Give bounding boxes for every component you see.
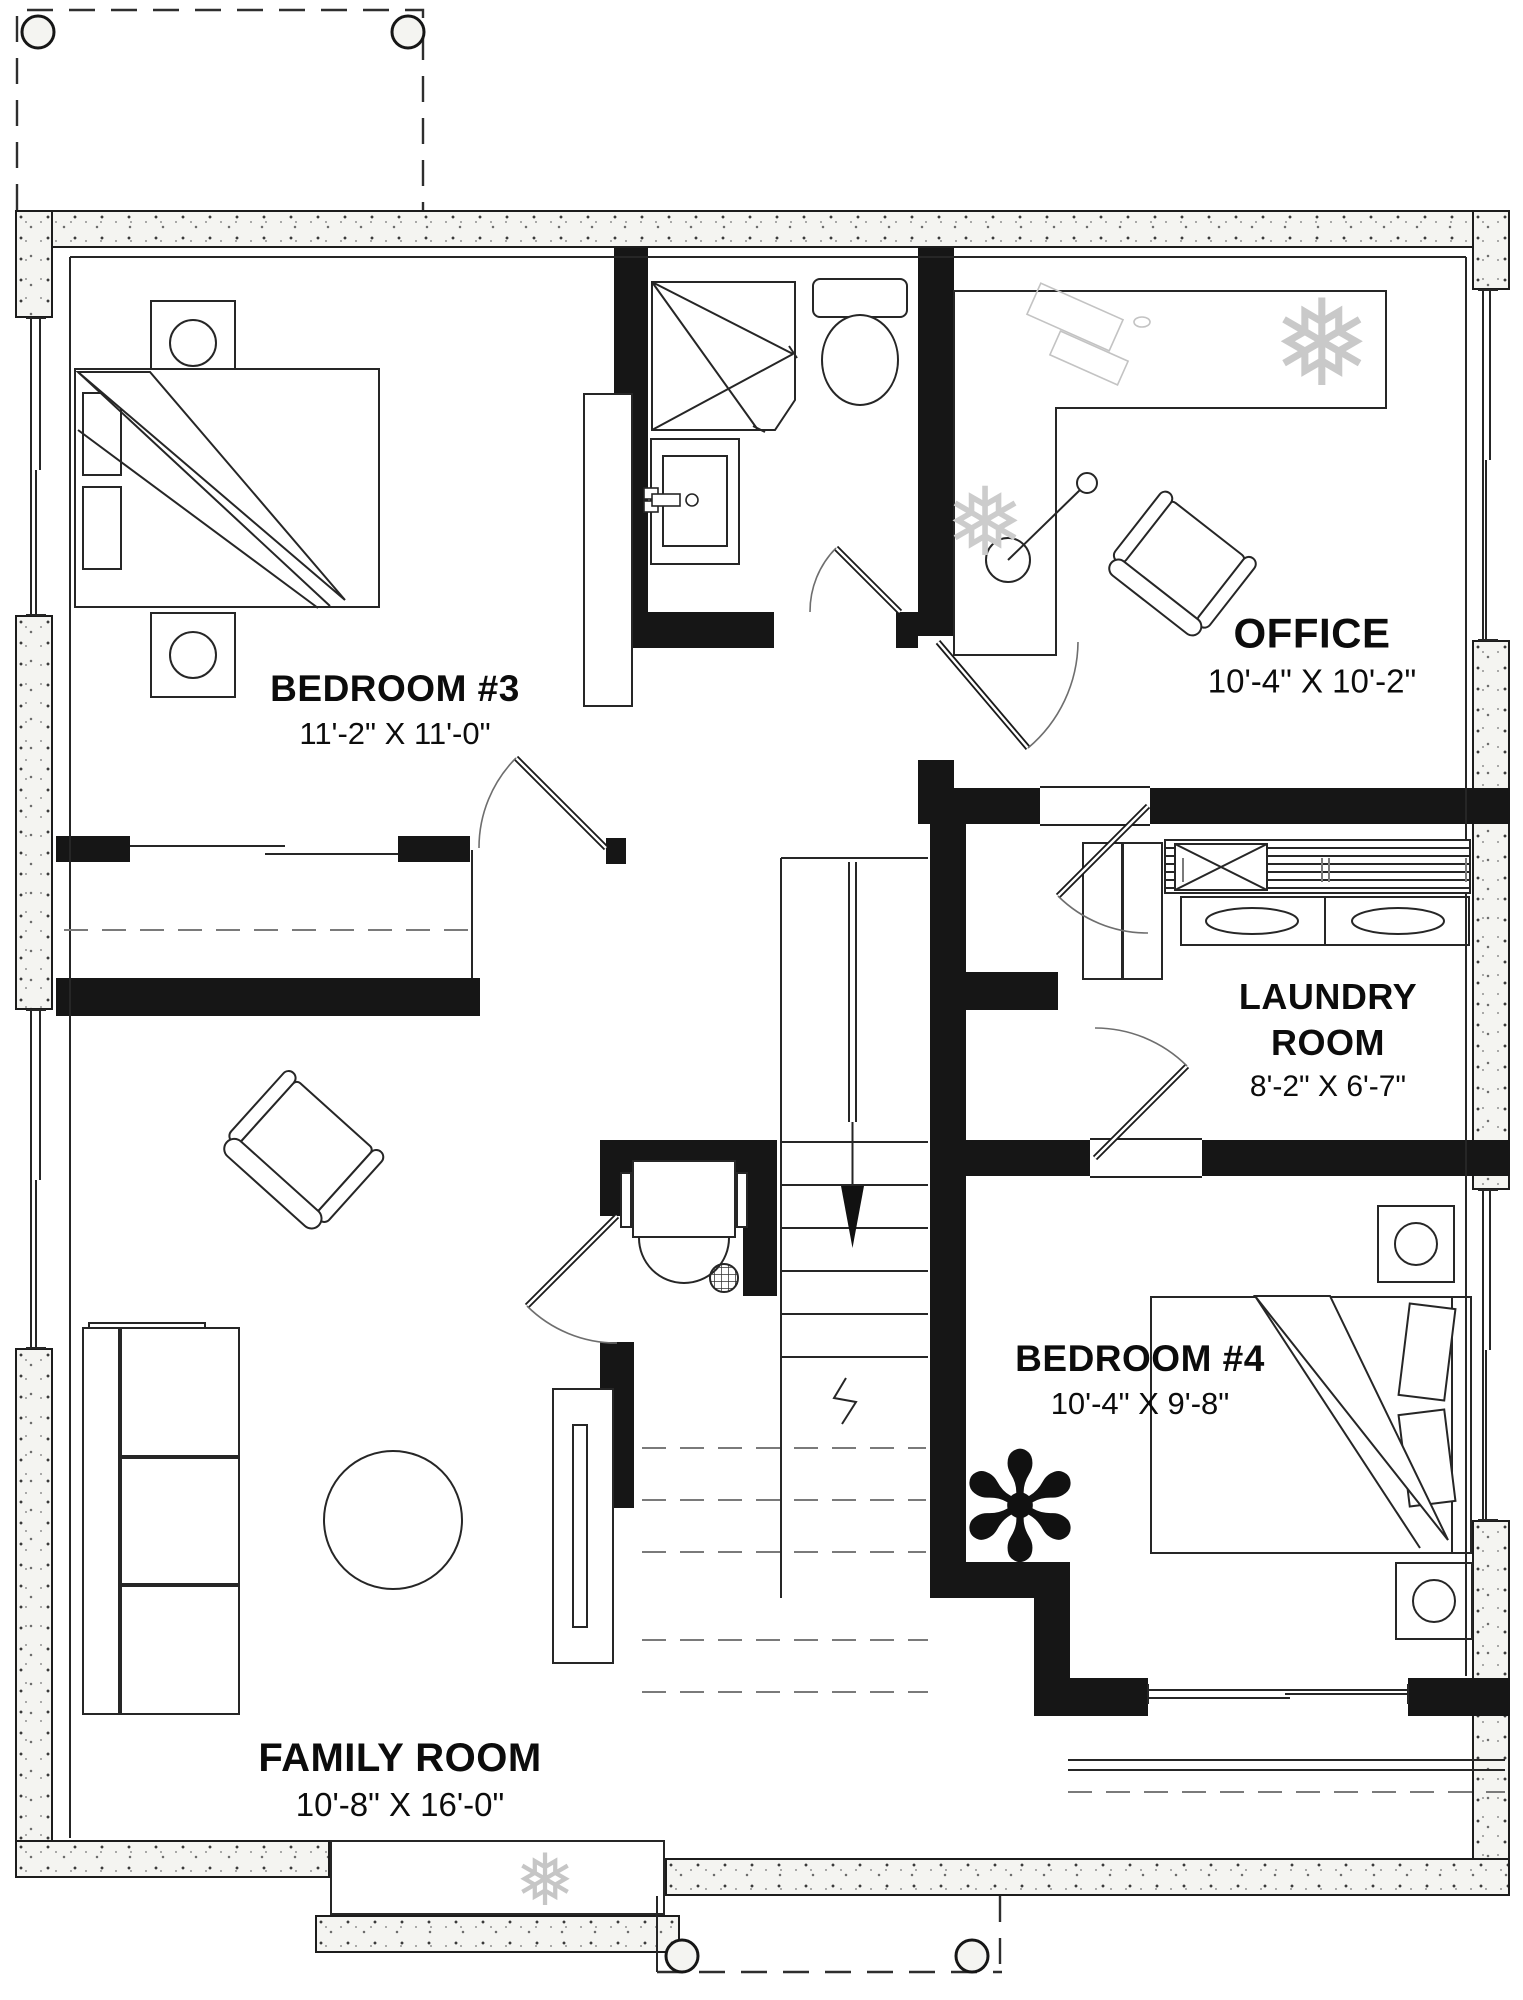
window-right-office bbox=[1478, 290, 1498, 640]
bathroom-door bbox=[810, 548, 900, 612]
porch-top-left bbox=[17, 10, 424, 210]
room-label-laundry: LAUNDRY ROOM 8'-2" X 6'-7" bbox=[1239, 976, 1417, 1104]
bedroom3-door bbox=[479, 758, 606, 848]
snowflake-plant: ❅ bbox=[945, 468, 1025, 578]
porch-bottom-center bbox=[657, 1896, 1002, 1972]
window-left-family bbox=[26, 1010, 46, 1348]
bed-blanket-fold bbox=[78, 372, 345, 608]
wire-shelf bbox=[1165, 840, 1470, 893]
room-label-family: FAMILY ROOM 10'-8" X 16'-0" bbox=[258, 1736, 541, 1824]
alcove-plant: ❅ bbox=[515, 1838, 575, 1922]
window-left-bedroom3 bbox=[26, 318, 46, 615]
stairs-direction-arrow bbox=[841, 1186, 864, 1248]
waste-bin bbox=[710, 1264, 738, 1292]
bed4-details bbox=[1255, 1296, 1455, 1554]
laundry-door bbox=[1058, 806, 1148, 933]
bedroom4-door bbox=[1095, 1028, 1187, 1158]
armchair bbox=[217, 1068, 386, 1235]
room-label-bedroom3: BEDROOM #3 11'-2" X 11'-0" bbox=[270, 668, 520, 752]
toilet bbox=[822, 315, 898, 405]
window-bedroom4-south bbox=[1068, 1684, 1505, 1792]
round-column bbox=[22, 16, 54, 48]
dryer bbox=[1352, 908, 1444, 934]
round-column bbox=[392, 16, 424, 48]
floor-plan: ❅ ❅ bbox=[0, 0, 1523, 2000]
corner-shower bbox=[652, 282, 797, 432]
room-label-office: OFFICE 10'-4" X 10'-2" bbox=[1208, 610, 1416, 701]
vanity-faucet bbox=[644, 488, 698, 512]
nook-door bbox=[527, 1216, 617, 1343]
stairs-down bbox=[642, 858, 928, 1692]
svg-text:❅: ❅ bbox=[515, 1838, 575, 1922]
round-column bbox=[666, 1940, 698, 1972]
office-door bbox=[938, 642, 1078, 748]
leafy-plant: ✻ bbox=[957, 1422, 1083, 1596]
bedroom3-closet bbox=[64, 846, 472, 978]
room-label-bedroom4: BEDROOM #4 10'-4" X 9'-8" bbox=[1015, 1338, 1265, 1422]
snowflake-plant: ❅ bbox=[1272, 275, 1373, 414]
window-right-bedroom4 bbox=[1478, 1190, 1498, 1520]
washer bbox=[1206, 908, 1298, 934]
svg-text:✻: ✻ bbox=[957, 1422, 1083, 1596]
round-column bbox=[956, 1940, 988, 1972]
